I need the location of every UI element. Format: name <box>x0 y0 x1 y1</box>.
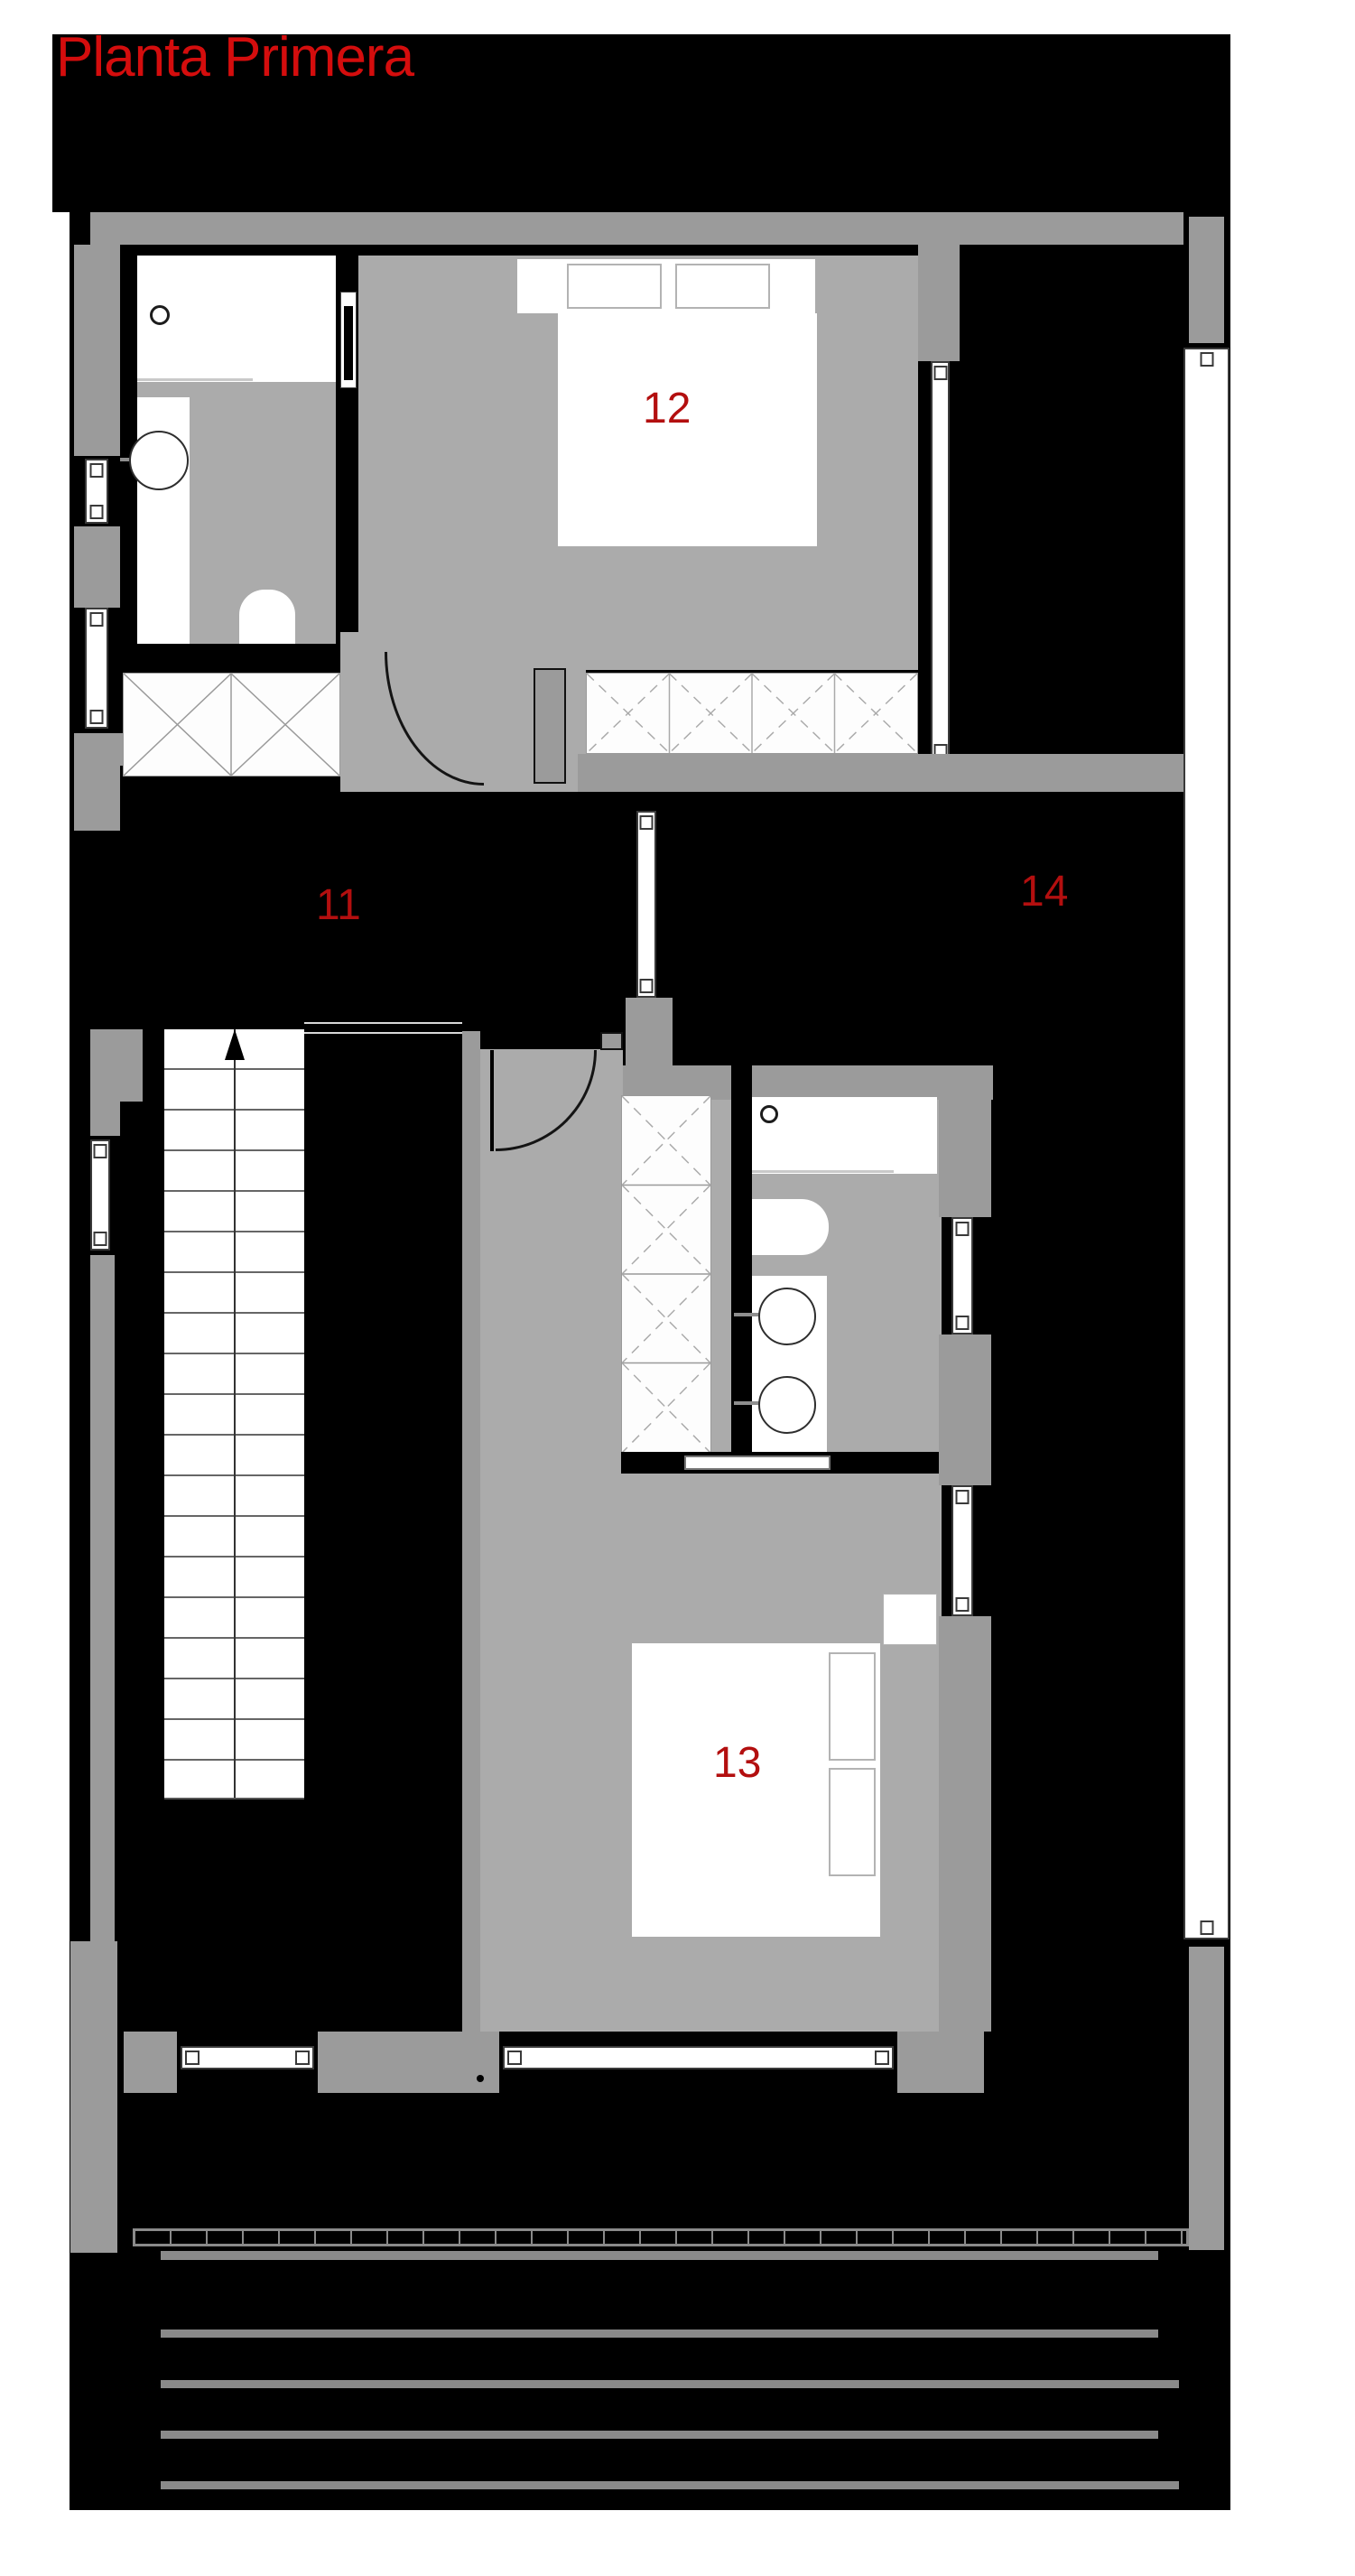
terrace-step <box>161 2380 1179 2388</box>
room-label-11: 11 <box>316 880 361 930</box>
window-room12-east <box>931 361 950 763</box>
terrace-edge-bar <box>133 2228 1189 2246</box>
wardrobe-room13 <box>621 1095 711 1454</box>
wall-bottom-pier-3 <box>897 2032 984 2093</box>
wall-mid-pier <box>626 998 673 1065</box>
room-label-14: 14 <box>1020 867 1068 916</box>
wall-room13-east-1 <box>939 1065 991 1217</box>
wall-bottom-pier-1 <box>124 2032 177 2093</box>
window-left-2 <box>85 608 108 729</box>
towel-rail-icon <box>684 1455 831 1470</box>
wall-left-upper-2 <box>74 526 120 608</box>
bed-12-headboard <box>517 259 815 313</box>
floor-plan: Planta Primera <box>0 0 1355 2576</box>
window-bottom-1 <box>181 2046 314 2069</box>
wall-pier-top-right <box>1186 214 1227 346</box>
wall-room13-west-stub <box>462 1031 480 1049</box>
sink-13a-icon <box>758 1288 816 1345</box>
wall-left-lower-block <box>90 1029 143 1102</box>
closet-room12-left <box>123 673 340 777</box>
wall-top <box>90 212 1183 245</box>
wall-room13-east-3 <box>939 1616 991 2032</box>
room-label-13: 13 <box>713 1738 761 1788</box>
pillow-icon <box>567 264 662 309</box>
window-left-3 <box>90 1139 110 1251</box>
glazed-partition-mid <box>636 811 656 998</box>
wall-room13-west <box>462 1049 480 2032</box>
stairwell-edge <box>304 1022 462 1024</box>
door-frame-13 <box>600 1032 623 1050</box>
bathtub-drain-icon <box>150 305 170 325</box>
wall-dot <box>477 2075 484 2082</box>
wall-left-upper-1 <box>74 245 120 456</box>
stairwell-edge <box>304 1032 462 1034</box>
pillow-icon <box>829 1768 876 1876</box>
page-title: Planta Primera <box>56 25 413 89</box>
facade-window-right <box>1183 348 1230 1939</box>
closet-room12-right <box>586 673 918 754</box>
wall-room13-east-2 <box>939 1334 991 1485</box>
window-bottom-2 <box>503 2046 894 2069</box>
toilet-12-icon <box>239 590 295 644</box>
nightstand-13 <box>883 1594 937 1645</box>
wall-left-lower-strip <box>90 1255 115 2032</box>
wall-room12-east-top <box>918 245 960 361</box>
wall-wardrobe-bath-sep <box>731 1061 752 1454</box>
window-room13-east-1 <box>951 1217 973 1334</box>
shower-edge <box>752 1170 894 1173</box>
terrace-step <box>161 2251 1158 2260</box>
pillow-icon <box>675 264 770 309</box>
wall-left-upper-3 <box>74 733 120 831</box>
bathtub-13 <box>752 1199 829 1255</box>
shower-13 <box>752 1097 937 1174</box>
wall-left-bottom <box>70 1941 117 2253</box>
pocket-door-leaf <box>344 306 353 380</box>
window-room13-east-2 <box>951 1485 973 1616</box>
door-leaf-12 <box>534 668 566 784</box>
sink-13b-icon <box>758 1376 816 1434</box>
staircase <box>164 1029 304 1799</box>
wall-bottom-pier-2 <box>318 2032 499 2093</box>
terrace-step <box>161 2330 1158 2338</box>
stair-up-arrow-icon <box>225 1029 245 1060</box>
wall-upper-south <box>578 754 1183 792</box>
wall-pier-bottom-right <box>1186 1944 1227 2253</box>
room-label-12: 12 <box>643 384 691 433</box>
bathtub-edge <box>137 378 253 381</box>
sink-12-icon <box>129 431 189 490</box>
pillow-icon <box>829 1652 876 1761</box>
terrace-step <box>161 2431 1158 2439</box>
window-left-1 <box>85 459 108 524</box>
stair-direction-line <box>234 1029 236 1798</box>
door-leaf-13 <box>490 1050 494 1151</box>
shower-drain-icon <box>760 1105 778 1123</box>
terrace-step <box>161 2481 1179 2489</box>
wall-left-lower-block-b <box>90 1102 120 1136</box>
